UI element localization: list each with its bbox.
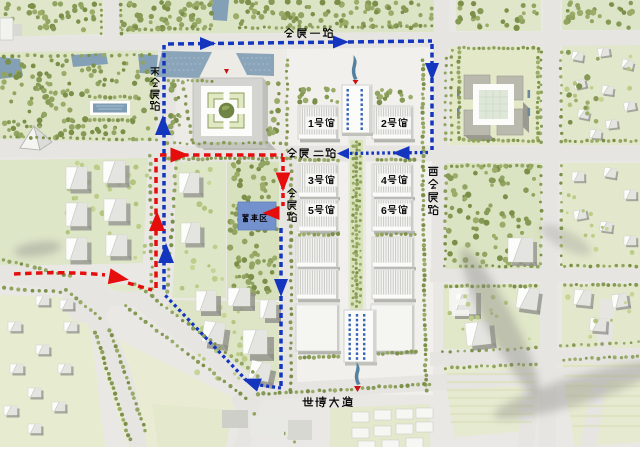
svg-text:6: 6 bbox=[381, 205, 387, 217]
svg-text:4: 4 bbox=[381, 175, 387, 187]
svg-text:5: 5 bbox=[308, 205, 314, 217]
svg-text:2: 2 bbox=[381, 118, 387, 130]
svg-text:1: 1 bbox=[308, 118, 314, 130]
svg-text:3: 3 bbox=[308, 175, 314, 187]
